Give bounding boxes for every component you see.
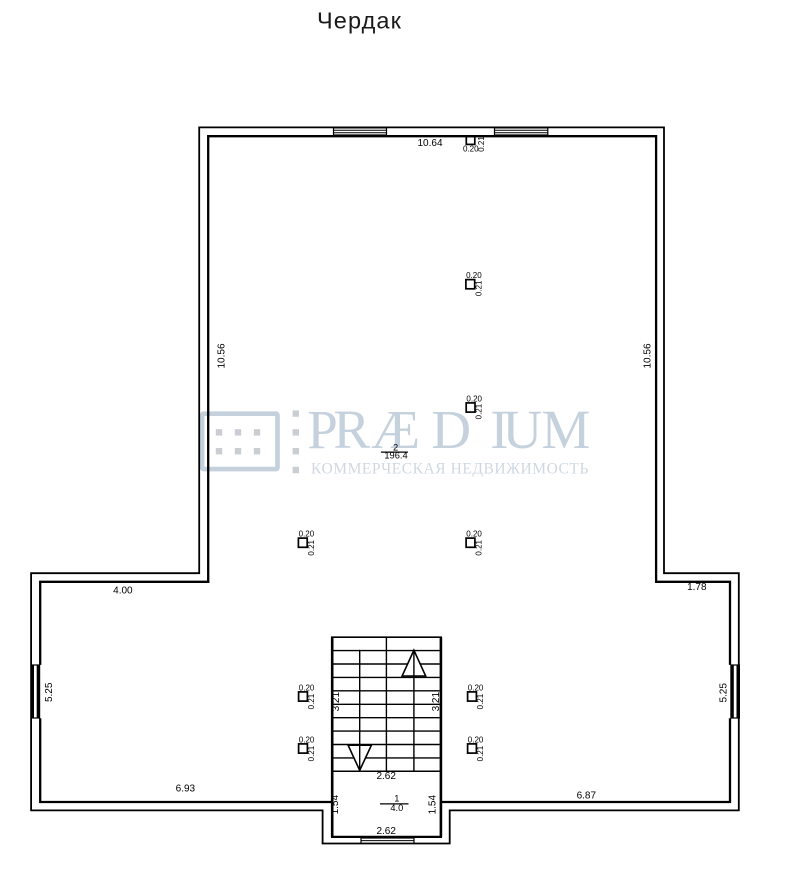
svg-text:Чердак: Чердак (317, 7, 402, 33)
svg-text:0.20: 0.20 (466, 394, 482, 403)
svg-text:10.56: 10.56 (643, 343, 654, 368)
svg-text:0.20: 0.20 (299, 735, 315, 744)
svg-text:1.78: 1.78 (687, 582, 707, 593)
svg-text:0.20: 0.20 (299, 530, 315, 539)
svg-text:0.20: 0.20 (466, 271, 482, 280)
svg-text:0.20: 0.20 (466, 530, 482, 539)
svg-text:0.21: 0.21 (476, 693, 485, 709)
svg-text:0.21: 0.21 (307, 745, 316, 761)
svg-text:0.21: 0.21 (475, 539, 484, 555)
svg-text:0.21: 0.21 (475, 403, 484, 419)
svg-text:0.20: 0.20 (299, 683, 315, 692)
svg-text:6.87: 6.87 (577, 790, 597, 801)
svg-text:0.21: 0.21 (474, 280, 483, 296)
svg-text:6.93: 6.93 (176, 784, 196, 795)
svg-text:0.21: 0.21 (307, 539, 316, 555)
svg-text:3.21: 3.21 (431, 692, 442, 712)
svg-text:4.00: 4.00 (113, 585, 133, 596)
svg-text:196.4: 196.4 (384, 451, 407, 461)
svg-text:3.21: 3.21 (331, 692, 342, 712)
svg-text:0.20: 0.20 (468, 735, 484, 744)
svg-text:5.25: 5.25 (719, 683, 730, 703)
svg-text:КОММЕРЧЕСКАЯ НЕДВИЖИМОСТЬ: КОММЕРЧЕСКАЯ НЕДВИЖИМОСТЬ (311, 461, 589, 478)
svg-text:10.56: 10.56 (216, 343, 227, 368)
svg-text:1.54: 1.54 (428, 795, 439, 815)
svg-text:0.21: 0.21 (476, 745, 485, 761)
svg-text:4.0: 4.0 (390, 803, 403, 813)
svg-text:2.62: 2.62 (376, 826, 396, 837)
svg-text:5.25: 5.25 (44, 682, 55, 702)
svg-text:R: R (333, 399, 370, 460)
svg-text:1.54: 1.54 (330, 795, 341, 815)
svg-text:U: U (503, 399, 543, 460)
svg-text:0.20: 0.20 (468, 683, 484, 692)
svg-text:0.21: 0.21 (477, 136, 486, 152)
svg-text:2.62: 2.62 (376, 771, 396, 782)
svg-text:0.21: 0.21 (307, 693, 316, 709)
svg-text:10.64: 10.64 (417, 138, 442, 149)
svg-text:D: D (431, 399, 471, 460)
svg-text:M: M (542, 399, 591, 460)
